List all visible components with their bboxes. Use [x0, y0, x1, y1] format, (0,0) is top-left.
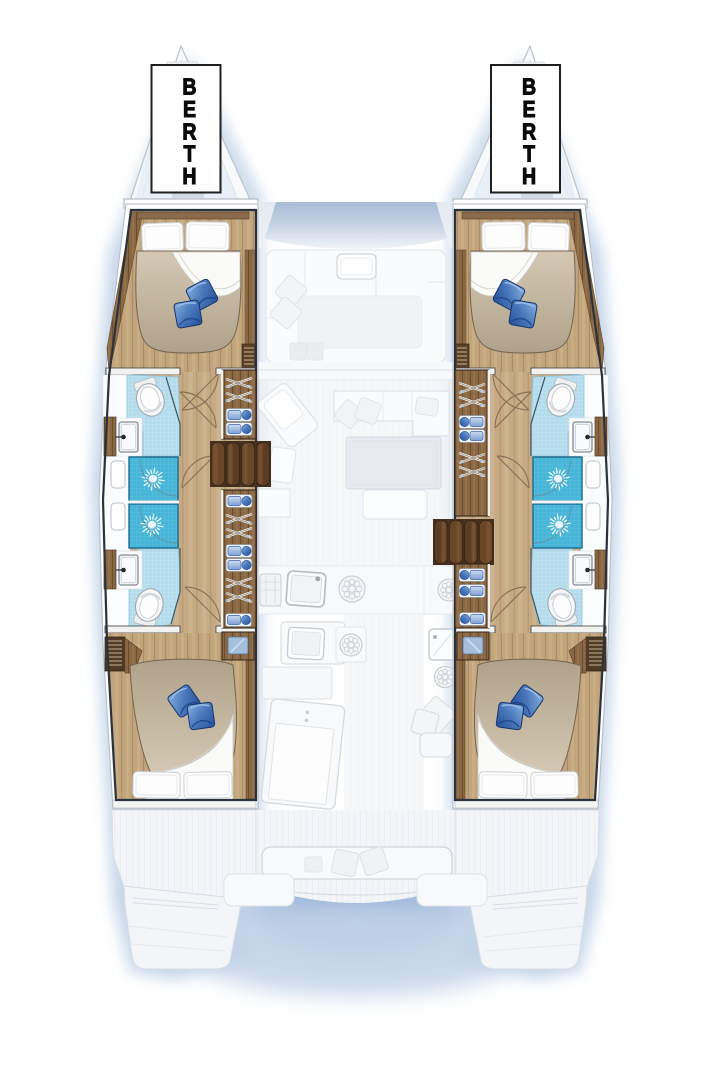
svg-text:H: H [522, 164, 536, 190]
svg-text:H: H [182, 164, 196, 190]
